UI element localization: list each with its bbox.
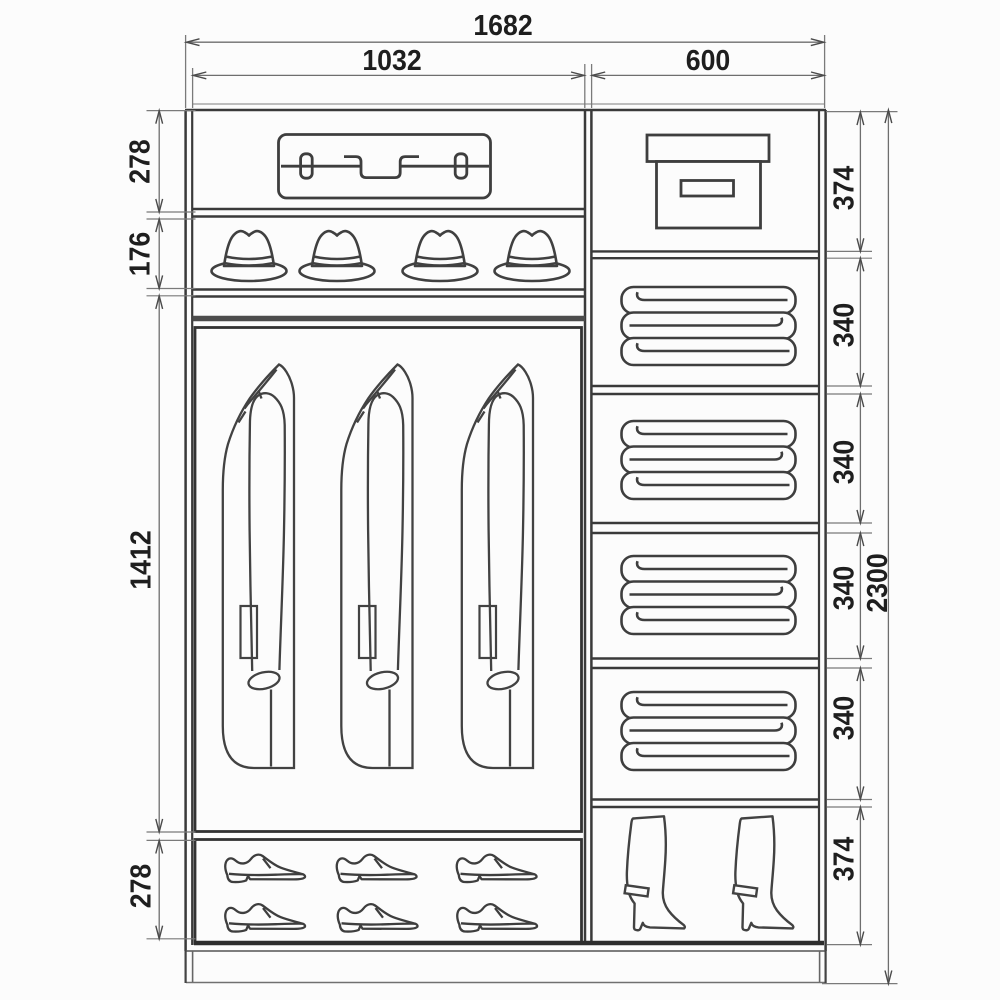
svg-text:1032: 1032 (362, 44, 421, 76)
svg-text:374: 374 (827, 836, 859, 881)
svg-text:1682: 1682 (473, 9, 532, 41)
svg-text:600: 600 (686, 44, 731, 76)
svg-text:278: 278 (124, 864, 156, 909)
svg-text:1412: 1412 (124, 530, 156, 589)
svg-text:340: 340 (827, 303, 859, 348)
svg-text:340: 340 (827, 566, 859, 611)
svg-text:278: 278 (123, 139, 155, 184)
svg-text:340: 340 (827, 440, 859, 485)
svg-text:176: 176 (123, 232, 155, 277)
svg-text:374: 374 (827, 165, 859, 210)
svg-text:340: 340 (827, 696, 859, 741)
svg-text:2300: 2300 (861, 553, 893, 612)
